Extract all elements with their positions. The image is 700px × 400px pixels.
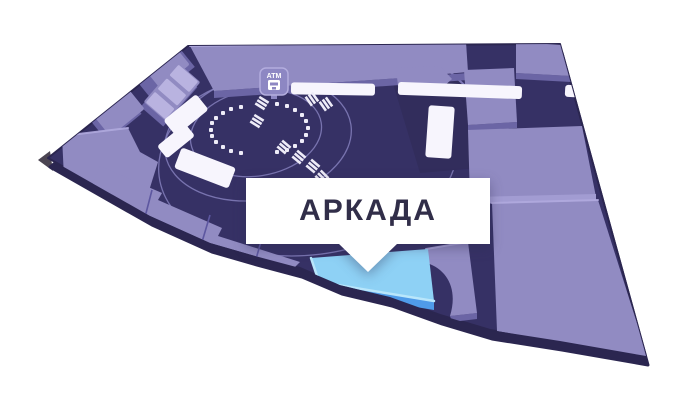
store-callout[interactable]: АРКАДА bbox=[246, 178, 490, 272]
atm-label: ATM bbox=[267, 73, 282, 80]
kiosk[interactable] bbox=[565, 85, 652, 101]
kiosk[interactable] bbox=[425, 105, 455, 159]
atm-machine-icon bbox=[268, 80, 280, 90]
store-callout-box[interactable]: АРКАДА bbox=[246, 178, 490, 244]
mall-map-view[interactable]: ATM АРКАДА bbox=[0, 0, 700, 400]
atm-marker[interactable]: ATM bbox=[260, 68, 288, 99]
store-block[interactable] bbox=[516, 42, 571, 76]
kiosk[interactable] bbox=[291, 82, 375, 95]
store-callout-label: АРКАДА bbox=[299, 194, 437, 228]
store-callout-pointer bbox=[338, 243, 398, 272]
